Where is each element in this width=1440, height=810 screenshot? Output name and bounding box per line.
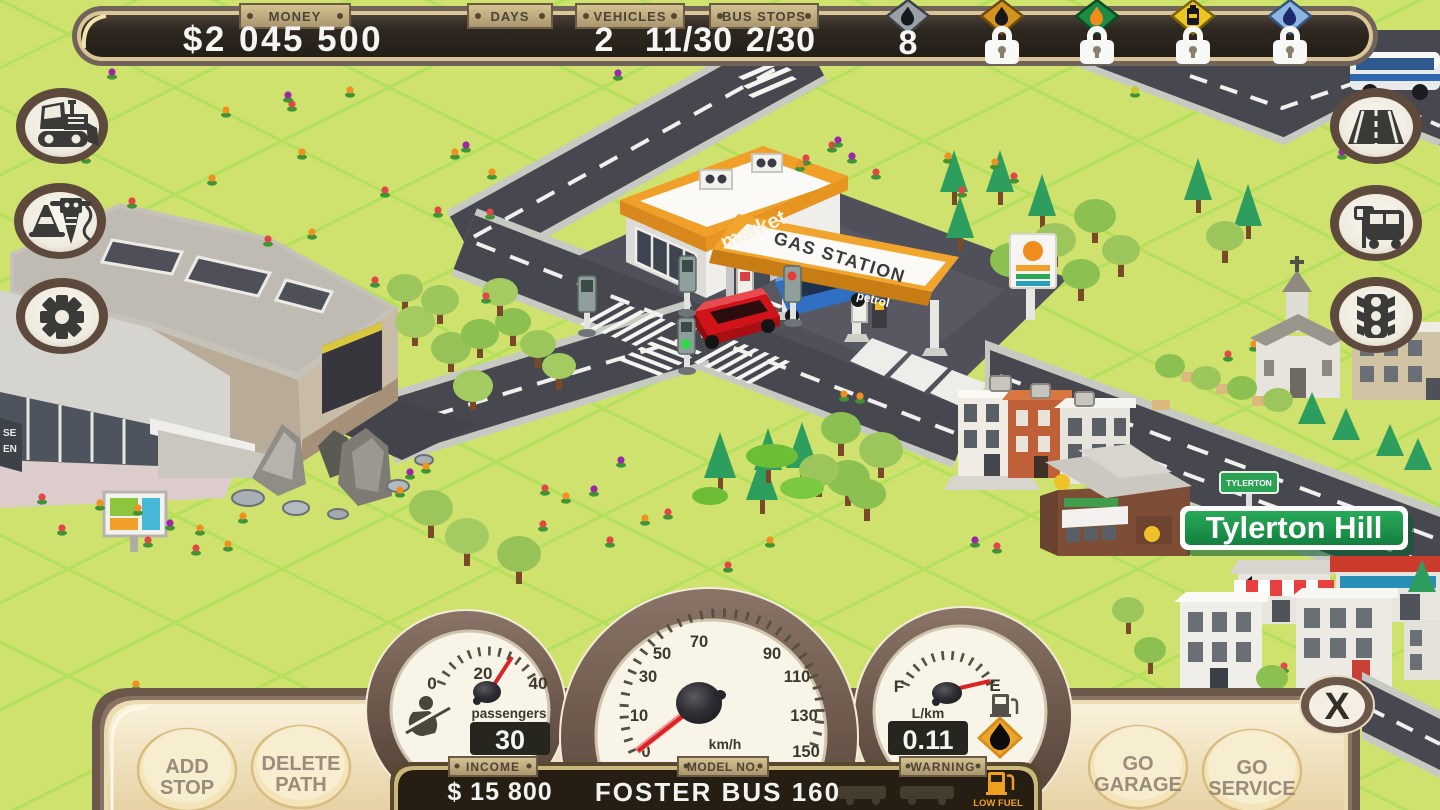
svg-text:50: 50 xyxy=(653,645,671,663)
svg-text:20: 20 xyxy=(474,664,493,683)
svg-text:FOSTER BUS 160: FOSTER BUS 160 xyxy=(595,777,841,807)
svg-text:PATH: PATH xyxy=(275,774,326,796)
svg-text:X: X xyxy=(1324,686,1350,728)
svg-text:DELETE: DELETE xyxy=(262,753,341,775)
svg-text:70: 70 xyxy=(690,633,708,651)
svg-text:110: 110 xyxy=(784,668,811,686)
svg-text:EN: EN xyxy=(3,444,17,455)
svg-text:30: 30 xyxy=(495,725,525,755)
svg-text:L/km: L/km xyxy=(912,705,945,721)
svg-text:passengers: passengers xyxy=(471,706,546,721)
svg-text:40: 40 xyxy=(529,674,548,693)
svg-text:SERVICE: SERVICE xyxy=(1208,778,1295,800)
svg-text:150: 150 xyxy=(792,743,820,761)
svg-text:MODEL NO.: MODEL NO. xyxy=(687,760,759,774)
svg-text:2: 2 xyxy=(595,21,614,59)
svg-text:10: 10 xyxy=(630,707,648,725)
svg-text:ADD: ADD xyxy=(165,756,208,778)
svg-text:8: 8 xyxy=(899,24,918,62)
svg-text:0.11: 0.11 xyxy=(902,725,953,755)
svg-text:11/30: 11/30 xyxy=(645,21,733,59)
svg-text:DAYS: DAYS xyxy=(491,9,530,24)
svg-text:2/30: 2/30 xyxy=(746,21,816,59)
svg-text:$2 045 500: $2 045 500 xyxy=(183,20,383,59)
svg-text:WARNING: WARNING xyxy=(911,760,976,774)
svg-text:30: 30 xyxy=(639,668,657,686)
svg-text:GO: GO xyxy=(1122,753,1153,775)
svg-text:130: 130 xyxy=(790,707,818,725)
svg-text:km/h: km/h xyxy=(709,736,742,752)
svg-text:SE: SE xyxy=(3,428,17,439)
svg-text:LOW FUEL: LOW FUEL xyxy=(973,798,1023,809)
svg-text:E: E xyxy=(989,676,1000,695)
svg-text:STOP: STOP xyxy=(160,777,214,799)
svg-text:TYLERTON: TYLERTON xyxy=(1226,478,1272,488)
svg-text:F: F xyxy=(894,677,904,696)
svg-text:Tylerton Hill: Tylerton Hill xyxy=(1206,510,1383,545)
svg-text:0: 0 xyxy=(427,674,436,693)
svg-text:INCOME: INCOME xyxy=(466,760,520,774)
svg-text:90: 90 xyxy=(763,645,781,663)
svg-text:GARAGE: GARAGE xyxy=(1094,774,1182,796)
svg-text:$ 15 800: $ 15 800 xyxy=(447,778,552,806)
svg-text:GO: GO xyxy=(1236,757,1267,779)
